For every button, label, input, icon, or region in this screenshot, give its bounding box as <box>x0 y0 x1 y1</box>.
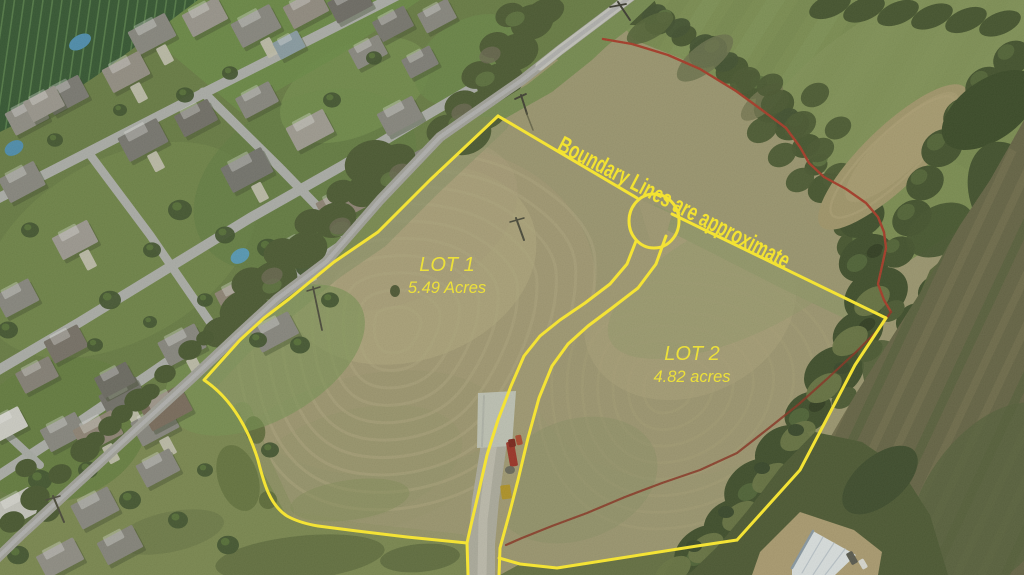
svg-text:5.49 Acres: 5.49 Acres <box>408 279 486 297</box>
svg-text:LOT 1: LOT 1 <box>419 254 475 276</box>
svg-text:LOT 2: LOT 2 <box>664 343 720 365</box>
svg-text:4.82 acres: 4.82 acres <box>653 368 730 386</box>
